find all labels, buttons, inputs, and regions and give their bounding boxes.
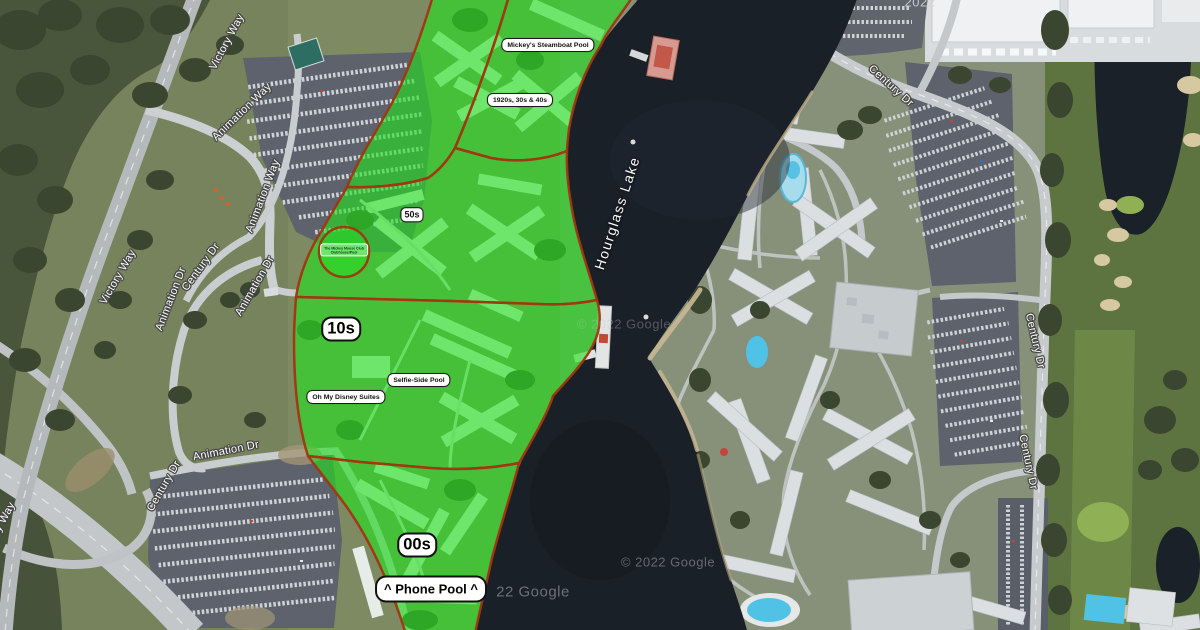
computer-pool [747,598,791,622]
satellite-map [0,0,1200,630]
zone-circle-clubhouse[interactable] [319,227,369,277]
bowling-pool [746,336,768,368]
classic-hall-building [830,282,918,356]
map-canvas[interactable]: Hourglass Lake © 2022 Google © 2022 Goog… [0,0,1200,630]
